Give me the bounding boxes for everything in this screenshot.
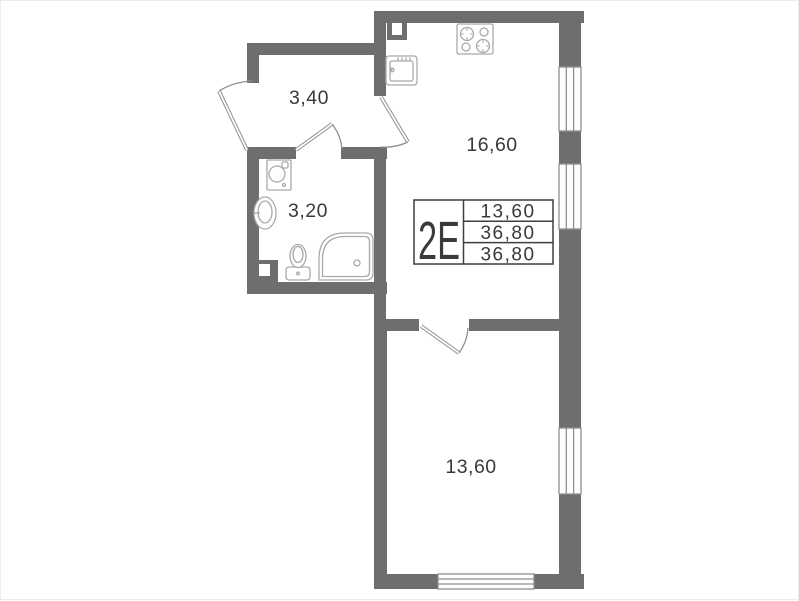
wall-room-bottom-left [374,574,438,589]
floor-plan: 3,40 3,20 16,60 13,60 2Е 13,60 36,80 36,… [1,1,799,601]
unit-overall-area: 36,80 [480,245,535,266]
wall-divider-left [386,319,419,331]
bathroom-area-label: 3,20 [288,200,328,222]
wall-right-pier [559,131,581,164]
wall-kitchen-left-upper [374,11,386,96]
duct-opening [259,264,270,276]
unit-type-label: 2Е [418,211,460,271]
bathtub-icon [319,233,373,280]
bathroom-door-arc [332,124,342,149]
wall-hall-left [247,43,259,83]
entry-door [219,81,252,150]
kitchen-sink-icon [386,56,417,85]
wall-room-left [374,331,387,589]
wall-hall-top [247,43,379,55]
unit-living-area: 13,60 [480,202,535,223]
stove-icon [457,24,493,54]
washing-machine-icon [267,160,291,190]
kitchen-door-arc [381,142,408,147]
wall-right-top [559,11,581,67]
wall-bath-bottom [247,282,387,294]
window-room-bottom [438,574,534,589]
room-area-label: 13,60 [445,456,496,478]
wall-vent-stub-right [402,23,407,40]
wall-right-bottom [559,494,581,589]
toilet-icon [286,245,310,281]
wall-kitchen-top [374,11,584,23]
window-kitchen-1 [559,67,581,131]
hall-area-label: 3,40 [289,87,329,109]
kitchen-area-label: 16,60 [466,134,517,156]
wall-right-mid [559,229,581,428]
window-kitchen-2 [559,164,581,229]
wall-left-mid [374,147,386,331]
bathroom-sink-icon [254,197,276,229]
room-door-arc [459,328,468,353]
unit-total-area: 36,80 [480,223,535,244]
window-room-right [559,428,581,494]
room-door [421,326,468,353]
bathroom-door [296,124,342,150]
floor-plan-page: 3,40 3,20 16,60 13,60 2Е 13,60 36,80 36,… [0,0,799,600]
kitchen-door [381,97,408,147]
wall-divider-right [469,319,561,331]
